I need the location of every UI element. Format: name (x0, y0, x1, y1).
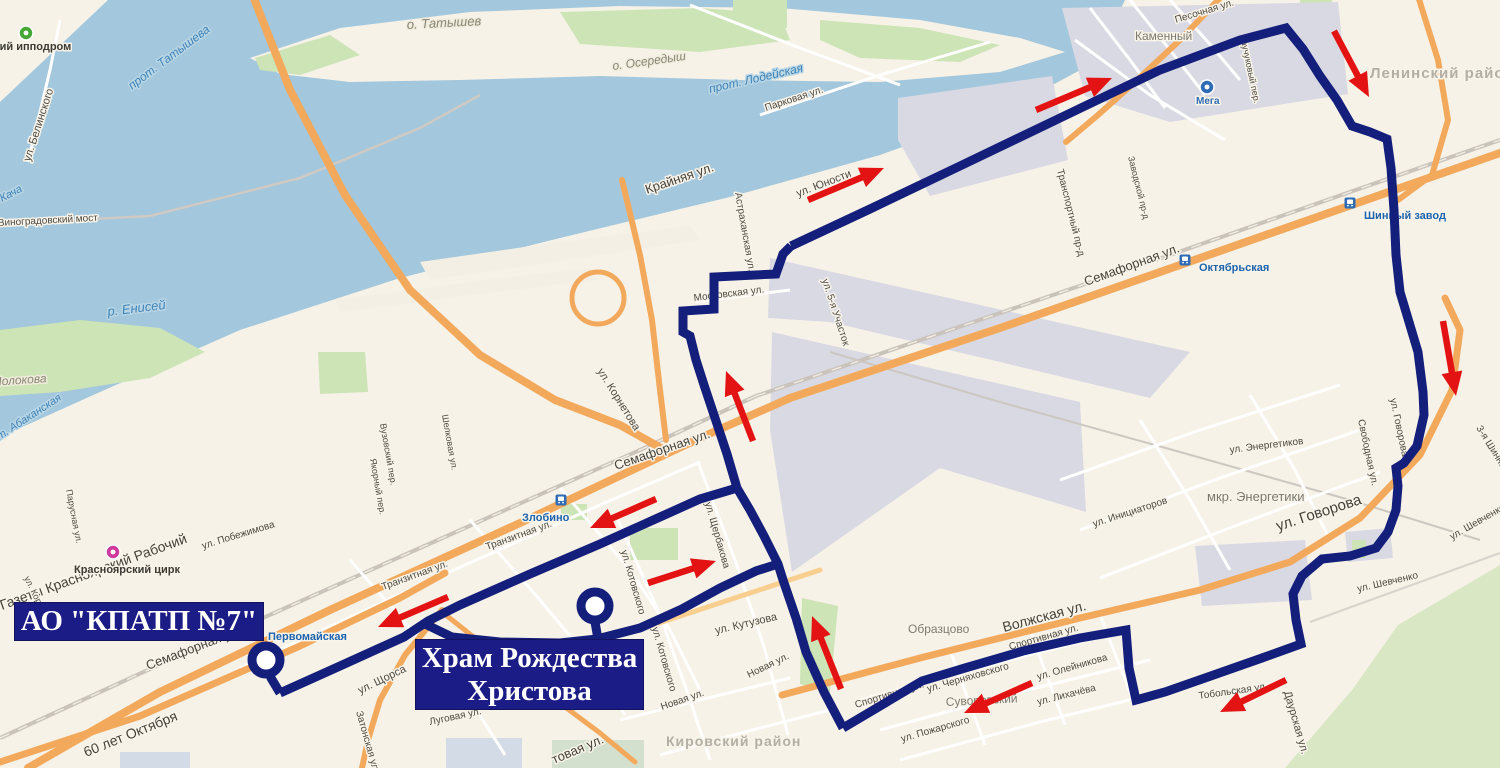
route-terminal-marker (581, 592, 609, 620)
map-label: ул. Пожарского (900, 715, 971, 745)
church-callout: Храм Рождества Христова (415, 639, 644, 710)
map-label: Новая ул. (659, 688, 705, 713)
map-label: Новая ул. (745, 651, 790, 681)
station-label: Злобино (522, 512, 570, 524)
map-label: Каменный (1135, 29, 1192, 43)
route-map-canvas[interactable]: Красноярский ипподромул. Белинскогопрот.… (0, 0, 1500, 768)
route-direction-arrow (725, 371, 753, 441)
map-label: Якорный пер. (368, 458, 388, 516)
map-label: Образцово (908, 622, 970, 636)
map-label: 3-я Шинная (1473, 424, 1500, 476)
bus-route-line (595, 622, 598, 639)
цирк-poi-icon (106, 545, 120, 559)
map-label: ул. Говорова (1387, 397, 1410, 458)
map-label: Шелковая ул. (440, 414, 460, 471)
map-label: Даурская ул. (1281, 690, 1311, 756)
map-label: Заводской пр-д (1126, 155, 1151, 221)
station-label: Первомайская (268, 631, 347, 643)
map-label: Транспортный пр-д (1054, 168, 1086, 257)
map-label: Ленинский район (1370, 65, 1500, 82)
depot-callout-text: АО "КПАТП №7" (21, 605, 257, 638)
map-label: Кировский район (666, 733, 801, 749)
map-label: Астраханская ул. (732, 192, 757, 273)
station-label: Шинный завод (1364, 210, 1446, 222)
church-callout-line2: Христова (467, 675, 591, 708)
map-label: мкр. Энергетики (1207, 489, 1304, 504)
Мега-poi-icon (1200, 80, 1214, 94)
church-callout-line1: Храм Рождества (422, 642, 638, 675)
route-direction-arrow (648, 558, 716, 583)
map-image: Красноярский ипподромул. Белинскогопрот.… (0, 0, 1500, 768)
map-label: Мега (1196, 96, 1220, 107)
map-label: Московская ул. (693, 284, 765, 304)
map-label: Красноярский цирк (74, 564, 180, 576)
map-label: ул. Шевченко (1448, 502, 1500, 543)
ипподром-poi-icon (19, 26, 33, 40)
map-label: Свободная ул. (1355, 418, 1381, 487)
station-label: Октябрьская (1199, 262, 1269, 274)
map-label: ул. Побежимова (200, 518, 276, 552)
map-label: Парусная ул. (64, 488, 84, 544)
map-label: ул. Инициаторов (1092, 495, 1169, 529)
map-label: ул. Кутузова (714, 611, 779, 637)
depot-callout: АО "КПАТП №7" (14, 602, 264, 641)
map-label: ул. Шевченко (1356, 570, 1419, 595)
route-terminal-marker (252, 646, 280, 674)
map-label: Красноярский ипподром (0, 41, 71, 53)
